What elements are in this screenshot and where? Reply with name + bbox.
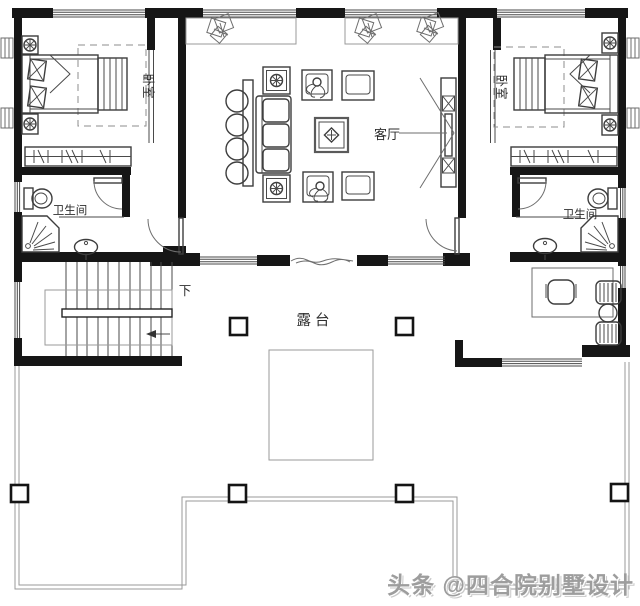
bedroom-left: 卧室	[22, 36, 156, 166]
study-area	[532, 268, 621, 345]
shower-icon	[22, 216, 59, 252]
terrace-column	[396, 485, 413, 502]
terrace-column	[396, 318, 413, 335]
person-figure	[310, 182, 328, 202]
toilet-icon	[24, 188, 52, 209]
stair-handrail	[62, 309, 172, 317]
terrace-column	[611, 484, 628, 501]
terrace-column	[11, 485, 28, 502]
desk-icon	[532, 268, 613, 317]
bathroom-right: 卫生间	[516, 188, 618, 260]
exterior-ledges	[1, 38, 639, 128]
bedroom-right: 卧室	[494, 33, 618, 166]
terrace-label: 露台	[297, 312, 334, 329]
ceiling-dashed-outline	[78, 45, 146, 126]
doors	[94, 178, 546, 265]
bed-icon	[514, 55, 618, 113]
bedroom-left-label: 卧室	[141, 73, 156, 98]
floor-plan-svg: 卧室 卧室	[0, 0, 640, 606]
terrace: 露台	[11, 312, 629, 589]
bathroom-right-label: 卫生间	[563, 207, 598, 221]
sofa-icon	[256, 96, 291, 173]
bathroom-right-door	[518, 178, 546, 209]
wardrobe-icon	[25, 147, 131, 166]
watermark: 头条 @四合院别墅设计	[387, 566, 634, 600]
person-figure	[307, 78, 325, 98]
coffee-table-icon	[315, 118, 348, 152]
floor-plan-canvas: 卧室 卧室	[0, 0, 640, 606]
living-room: 客厅	[186, 13, 458, 202]
desk-chair-icon	[546, 280, 576, 304]
window-sill	[186, 18, 296, 44]
living-room-label: 客厅	[374, 127, 400, 142]
stairs-down-label: 下	[179, 284, 192, 298]
bathroom-left-label: 卫生间	[53, 203, 88, 217]
bathroom-left-door	[94, 178, 122, 209]
bathroom-left: 卫生间	[22, 188, 124, 260]
terrace-skylight	[269, 350, 373, 460]
shower-icon	[581, 216, 618, 252]
terrace-column	[230, 318, 247, 335]
bedroom-right-label: 卧室	[494, 74, 509, 99]
stool-icon	[226, 90, 248, 184]
terrace-column	[229, 485, 246, 502]
terrace-opening	[291, 258, 353, 265]
toilet-icon	[588, 188, 617, 209]
wardrobe-icon	[511, 147, 617, 166]
tv-cabinet-icon	[399, 78, 456, 188]
stairs: 下	[45, 262, 191, 356]
round-table-icon	[599, 304, 617, 322]
side-table-icon	[263, 67, 290, 202]
living-room-door-right	[426, 218, 459, 254]
bed-icon	[22, 55, 127, 113]
